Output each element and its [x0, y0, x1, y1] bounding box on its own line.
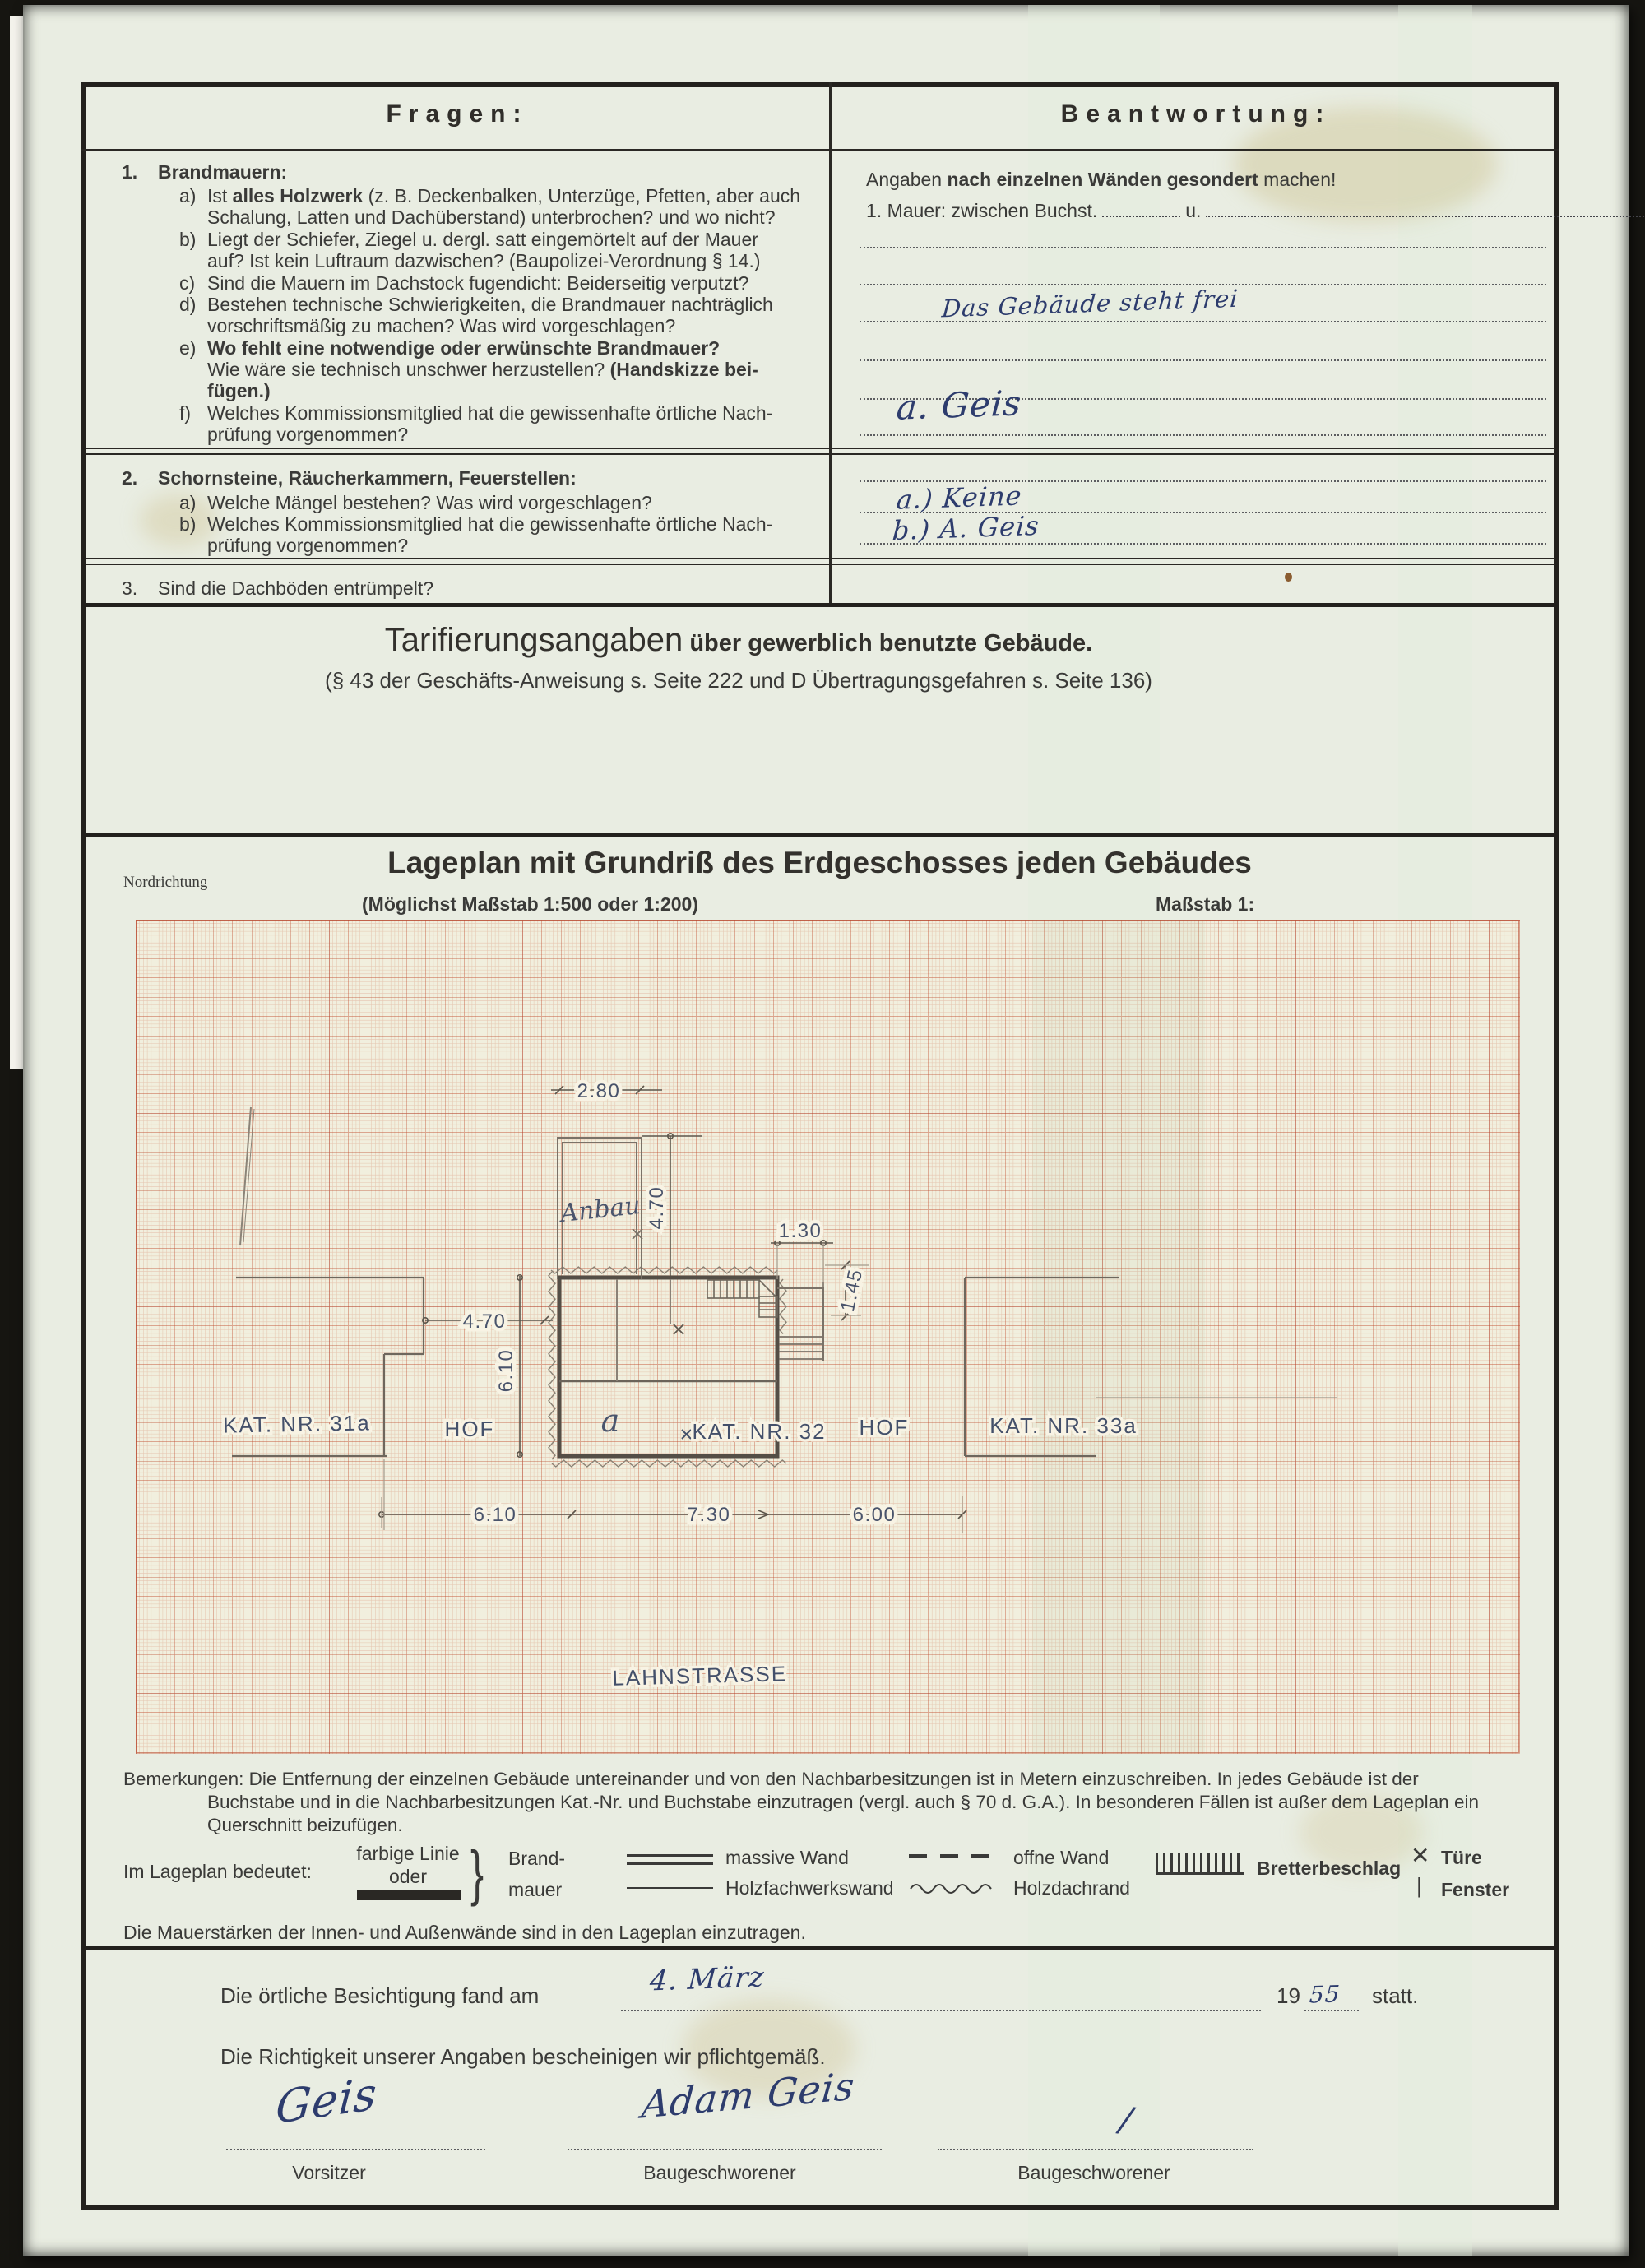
label-street: LAHNSTRASSE: [612, 1661, 787, 1691]
dim-4-70-hof: 4.70: [463, 1310, 507, 1333]
signature-line-3: [938, 2149, 1253, 2150]
dim-6-00-bottom: 6.00: [853, 1504, 897, 1526]
remarks-line-2: Buchstabe und in die Nachbarbesitzungen …: [207, 1792, 1479, 1813]
q1f-line2: prüfung vorgenommen?: [207, 424, 408, 445]
q3-text: Sind die Dachböden entrümpelt?: [158, 577, 433, 599]
q1-number: 1.: [122, 161, 137, 183]
q2-title: Schornsteine, Räucherkammern, Feuerstell…: [158, 467, 577, 489]
statt-label: statt.: [1372, 1984, 1418, 2009]
massstab-label: Maßstab 1:: [1156, 893, 1254, 915]
label-kat-31a: KAT. NR. 31a: [223, 1410, 371, 1437]
tarif-title-main: Tarifierungsangaben: [385, 622, 683, 658]
tarif-title: Tarifierungsangaben über gewerblich benu…: [81, 621, 1397, 659]
scan-tint-band: [1032, 920, 1205, 1754]
q2a-text: Welche Mängel bestehen? Was wird vorgesc…: [207, 492, 652, 513]
color-line-symbol: [357, 1890, 461, 1900]
label-hof-right: HOF: [860, 1415, 910, 1440]
q2a-letter: a): [179, 492, 196, 513]
offne-wand-symbol: [909, 1854, 1001, 1858]
fragen-header: Fragen:: [247, 100, 668, 129]
label-baugeschworener-2: Baugeschworener: [995, 2162, 1193, 2183]
legend-holzfachwerkswand: Holzfachwerkswand: [725, 1877, 894, 1899]
q2b-line2: prüfung vorgenommen?: [207, 535, 408, 556]
mauerstaerken-note: Die Mauerstärken der Innen- und Außenwän…: [123, 1922, 806, 1943]
header-rule: [81, 149, 1559, 151]
legend-tuere: Türe: [1441, 1847, 1482, 1868]
fill-in-blank: [1206, 200, 1645, 217]
legend-offne-wand: offne Wand: [1013, 1847, 1109, 1868]
label-kat-32: KAT. NR. 32: [692, 1419, 826, 1444]
holzdachrand-symbol: [909, 1881, 1001, 1894]
q1d-line1: Bestehen technische Schwierigkeiten, die…: [207, 294, 773, 315]
handwritten-q2b: b.) A. Geis: [892, 510, 1040, 546]
q2-q3-divider: [86, 564, 1555, 565]
legend-holzdachrand: Holzdachrand: [1013, 1877, 1130, 1899]
q1e-line2: Wie wäre sie technisch unschwer herzuste…: [207, 359, 758, 380]
q1e-line3: fügen.): [207, 380, 271, 401]
dim-2-80: 2.80: [577, 1080, 621, 1102]
q1c-line1: Sind die Mauern im Dachstock fugendicht:…: [207, 272, 748, 294]
q1d-letter: d): [179, 294, 196, 315]
remarks-line-3: Querschnitt beizufügen.: [207, 1815, 403, 1836]
q1a-line1: Ist alles Holzwerk (z. B. Deckenbalken, …: [207, 185, 800, 206]
answers-intro: Angaben nach einzelnen Wänden gesondert …: [866, 169, 1336, 190]
answer-writing-line: [860, 247, 1546, 248]
massive-wand-symbol: [627, 1854, 713, 1865]
q1f-letter: f): [179, 402, 191, 424]
q1b-line1: Liegt der Schiefer, Ziegel u. dergl. sat…: [207, 229, 758, 250]
dim-6-10-vertical: 6.10: [495, 1349, 517, 1393]
holzfachwerkswand-symbol: [627, 1887, 713, 1889]
handwritten-date: 4. März: [649, 1961, 766, 1998]
label-building-a: a: [601, 1403, 620, 1439]
tarif-subtitle: (§ 43 der Geschäfts-Anweisung s. Seite 2…: [81, 669, 1397, 693]
mauer-u: u.: [1185, 200, 1201, 221]
footer-section-rule: [81, 1946, 1559, 1950]
q1b-letter: b): [179, 229, 196, 250]
lageplan-section-rule: [81, 833, 1559, 837]
q1c-letter: c): [179, 272, 195, 294]
remarks-line-1: Bemerkungen: Die Entfernung der einzelne…: [123, 1769, 1419, 1790]
q1a-letter: a): [179, 185, 196, 206]
handwritten-year: 55: [1309, 1980, 1341, 2008]
legend-brandmauer-2: mauer: [508, 1879, 562, 1900]
q1b-line2: auf? Ist kein Luftraum dazwischen? (Baup…: [207, 250, 761, 271]
q1d-line2: vorschriftsmäßig zu machen? Was wird vor…: [207, 315, 675, 336]
q1e-line1: Wo fehlt eine notwendige oder erwünschte…: [207, 337, 720, 359]
label-vorsitzer: Vorsitzer: [247, 2162, 411, 2183]
site-plan-graph-paper: 2.80 4.70 1.30 1.45 6.10 4.70 6.10 7.30 …: [136, 920, 1520, 1754]
signature-line-2: [568, 2149, 882, 2150]
q1e-letter: e): [179, 337, 196, 359]
lageplan-title: Lageplan mit Grundriß des Erdgeschosses …: [81, 846, 1559, 881]
q1-q2-divider: [86, 448, 1555, 449]
mauer-label: 1. Mauer: zwischen Buchst.: [866, 200, 1097, 221]
dim-7-30-bottom: 7.30: [688, 1504, 731, 1526]
legend-fenster: Fenster: [1441, 1879, 1509, 1900]
fill-in-blank: [1102, 200, 1180, 217]
q1-q2-divider: [86, 453, 1555, 455]
legend-brandmauer-1: Brand-: [508, 1848, 565, 1869]
handwritten-answer-2: a. Geis: [895, 383, 1022, 427]
dim-6-10-bottom: 6.10: [474, 1504, 517, 1526]
q2-q3-divider: [86, 558, 1555, 559]
legend-brace: }: [470, 1838, 484, 1908]
column-divider: [829, 82, 832, 603]
q1f-line1: Welches Kommissionsmitglied hat die gewi…: [207, 402, 772, 424]
beantwortung-header: Beantwortung:: [905, 100, 1487, 129]
year-printed: 19: [1277, 1984, 1300, 2009]
answer-writing-line: [860, 434, 1546, 436]
scanned-form-page: { "header": { "left": "Fragen:", "right"…: [0, 0, 1645, 2268]
legend-bretterbeschlag: Bretterbeschlag: [1257, 1858, 1401, 1879]
inspection-date-line: [621, 2010, 1261, 2011]
dim-1-30: 1.30: [779, 1220, 822, 1242]
north-label: Nordrichtung: [123, 874, 207, 892]
q2b-line1: Welches Kommissionsmitglied hat die gewi…: [207, 513, 772, 535]
year-fill-line: [1304, 2010, 1359, 2011]
answers-mauer-line: 1. Mauer: zwischen Buchst.u.: [866, 200, 1645, 221]
q1-title: Brandmauern:: [158, 161, 287, 183]
q3-number: 3.: [122, 577, 137, 599]
answer-writing-line: [860, 359, 1546, 361]
legend-intro: Im Lageplan bedeutet:: [123, 1861, 312, 1882]
confirmation-text: Die Richtigkeit unserer Angaben beschein…: [220, 2045, 826, 2070]
label-hof-left: HOF: [445, 1417, 495, 1441]
tuere-symbol: ✕: [1411, 1843, 1430, 1869]
legend-farbige-linie: farbige Linie: [354, 1843, 462, 1864]
inspection-pre: Die örtliche Besichtigung fand am: [220, 1984, 539, 2009]
label-baugeschworener-1: Baugeschworener: [621, 2162, 818, 2183]
q1a-line2: Schalung, Latten und Dachüberstand) unte…: [207, 206, 775, 228]
lageplan-scale-hint: (Möglichst Maßstab 1:500 oder 1:200): [362, 893, 698, 915]
legend-oder: oder: [354, 1866, 462, 1887]
handwritten-q2a: a.) Keine: [896, 480, 1023, 515]
label-kat-33a: KAT. NR. 33a: [989, 1413, 1138, 1438]
q2b-letter: b): [179, 513, 196, 535]
tarif-title-rest: über gewerblich benutzte Gebäude.: [683, 630, 1092, 656]
signature-line-1: [226, 2149, 485, 2150]
q2-number: 2.: [122, 467, 137, 489]
dim-4-70-anbau: 4.70: [646, 1186, 668, 1230]
legend-massive-wand: massive Wand: [725, 1847, 849, 1868]
tarif-section-rule: [81, 603, 1559, 607]
bretterbeschlag-symbol: [1156, 1853, 1244, 1875]
fenster-symbol: |: [1416, 1874, 1422, 1899]
